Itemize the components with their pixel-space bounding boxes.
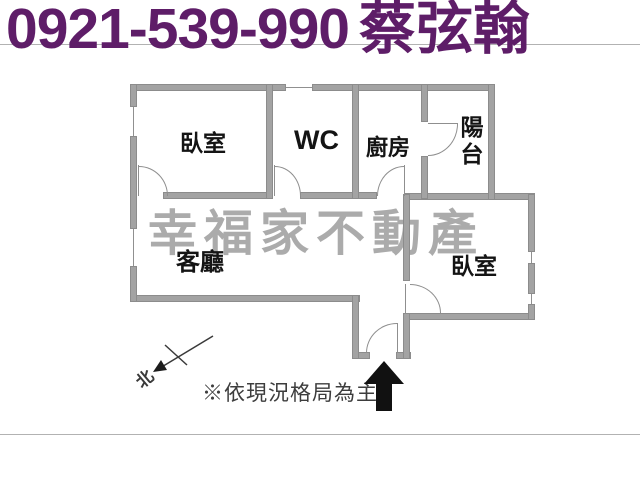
door-arc: [428, 124, 458, 156]
wall: [163, 192, 268, 199]
wall: [266, 84, 273, 199]
divider-bottom: [0, 434, 640, 435]
door-arc: [410, 284, 441, 313]
door-leaf: [397, 323, 398, 353]
header: 0921-539-990蔡弦翰: [6, 0, 640, 60]
floorplan-page: { "header": { "phone": "0921-539-990", "…: [0, 0, 640, 480]
room-label-living: 客廳: [176, 242, 224, 277]
wall: [130, 136, 137, 229]
window: [133, 229, 134, 266]
disclaimer-note: ※依現況格局為主: [202, 377, 378, 407]
room-label-wc: WC: [294, 125, 339, 156]
wall: [130, 84, 286, 91]
door-arc: [366, 323, 397, 353]
wall: [421, 156, 428, 199]
door-leaf: [405, 284, 406, 314]
room-label-balcony: 陽台: [459, 114, 485, 168]
north-label: 北: [132, 367, 157, 392]
wall: [488, 84, 495, 200]
window: [133, 107, 134, 136]
door-leaf: [404, 165, 405, 196]
wall: [312, 84, 495, 91]
entrance-arrow-icon: [364, 361, 404, 384]
wall: [130, 84, 137, 107]
door-arc: [275, 166, 301, 196]
wall: [421, 84, 428, 122]
entrance-arrow-icon: [376, 383, 392, 411]
window: [531, 252, 532, 263]
wall: [300, 192, 377, 199]
wall: [352, 84, 359, 199]
north-compass-icon: 北: [130, 326, 225, 396]
room-label-kitchen: 廚房: [366, 130, 410, 162]
window: [531, 294, 532, 304]
wall: [403, 313, 535, 320]
wall: [528, 194, 535, 252]
door-arc: [377, 166, 404, 196]
door-arc: [139, 166, 168, 196]
wall: [130, 266, 137, 302]
wall: [528, 304, 535, 320]
window: [286, 87, 312, 88]
room-label-bedroom-left: 臥室: [180, 124, 226, 158]
phone-number: 0921-539-990: [6, 0, 349, 61]
wall: [403, 194, 410, 281]
wall: [352, 295, 359, 359]
wall: [403, 313, 410, 359]
wall: [528, 263, 535, 294]
room-label-bedroom-right: 臥室: [451, 247, 497, 281]
agent-name: 蔡弦翰: [359, 0, 530, 61]
wall: [130, 295, 360, 302]
